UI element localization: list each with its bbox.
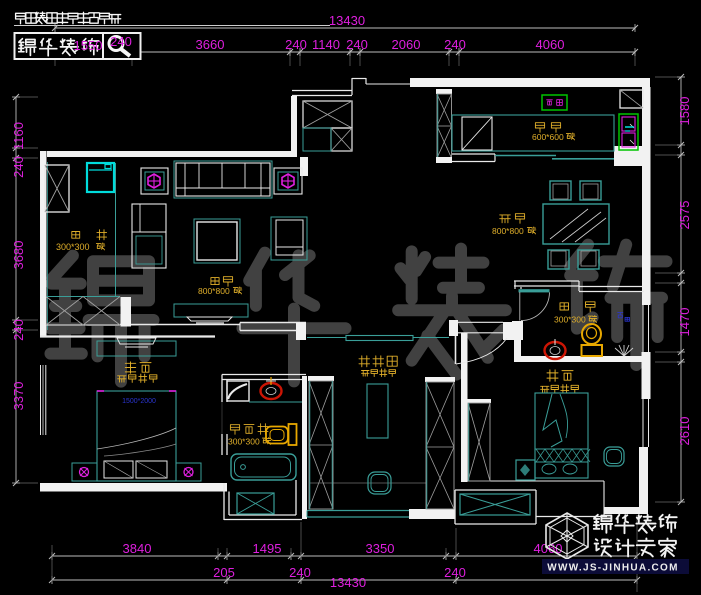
- svg-text:4060: 4060: [536, 37, 565, 52]
- svg-text:1500*2000: 1500*2000: [122, 398, 156, 405]
- svg-text:13430: 13430: [329, 13, 365, 28]
- svg-text:300*300: 300*300: [554, 315, 586, 325]
- svg-text:1140: 1140: [312, 37, 340, 52]
- svg-text:800*800: 800*800: [198, 286, 230, 296]
- svg-text:3660: 3660: [196, 37, 225, 52]
- svg-text:240: 240: [285, 37, 307, 52]
- svg-text:240: 240: [444, 37, 466, 52]
- svg-text:1550: 1550: [74, 38, 103, 53]
- svg-text:300*300: 300*300: [56, 242, 90, 252]
- svg-text:2610: 2610: [677, 417, 692, 446]
- svg-text:3840: 3840: [123, 541, 152, 556]
- svg-text:WWW.JS-JINHUA.COM: WWW.JS-JINHUA.COM: [547, 563, 679, 574]
- svg-text:600*600: 600*600: [532, 132, 564, 142]
- svg-text:240: 240: [346, 37, 368, 52]
- svg-text:240: 240: [289, 565, 311, 580]
- svg-text:13430: 13430: [330, 575, 366, 590]
- svg-text:205: 205: [213, 565, 235, 580]
- svg-text:1160: 1160: [11, 122, 26, 150]
- svg-text:2060: 2060: [392, 37, 421, 52]
- svg-text:1580: 1580: [677, 97, 692, 126]
- svg-text:240: 240: [11, 156, 26, 178]
- svg-text:1495: 1495: [253, 541, 282, 556]
- svg-text:3370: 3370: [11, 382, 26, 411]
- svg-text:3680: 3680: [11, 241, 26, 270]
- svg-text:300*300: 300*300: [228, 437, 260, 447]
- svg-text:1470: 1470: [677, 308, 692, 337]
- svg-text:240: 240: [444, 565, 466, 580]
- svg-text:240: 240: [11, 319, 26, 341]
- svg-text:3350: 3350: [366, 541, 395, 556]
- svg-text:2575: 2575: [677, 201, 692, 230]
- svg-text:800*800: 800*800: [492, 226, 524, 236]
- svg-text:240: 240: [110, 34, 132, 49]
